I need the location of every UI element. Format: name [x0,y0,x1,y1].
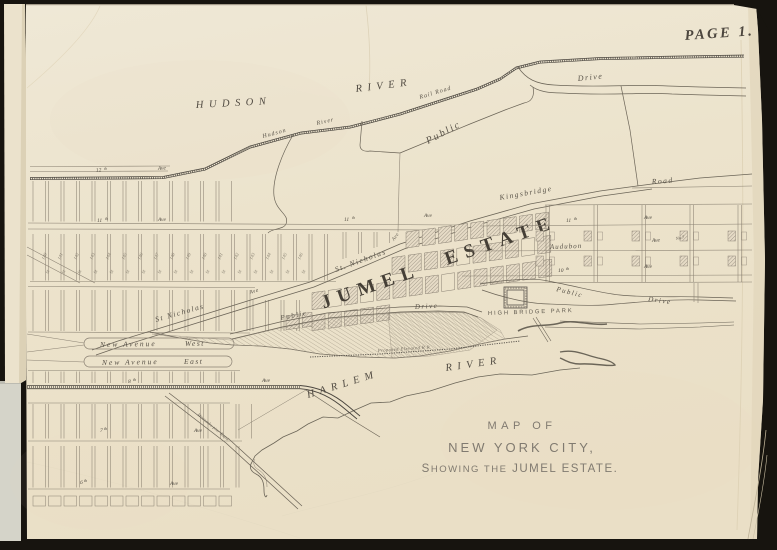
svg-text:11: 11 [97,218,102,224]
svg-text:Ave: Ave [651,238,661,244]
svg-text:th: th [352,215,355,220]
svg-text:Ave: Ave [157,165,167,172]
svg-text:MAP OF: MAP OF [488,420,557,432]
svg-text:th: th [105,216,108,221]
svg-text:Audubon: Audubon [549,242,583,251]
svg-text:Ave: Ave [157,217,166,223]
svg-text:Ave: Ave [643,215,652,221]
svg-text:10: 10 [558,268,564,274]
svg-text:11: 11 [566,218,571,224]
svg-text:SHOWING THE JUMEL ESTATE.: SHOWING THE JUMEL ESTATE. [422,463,619,475]
svg-text:Drive: Drive [414,302,439,311]
svg-text:th: th [84,478,87,483]
svg-text:NEW YORK CITY,: NEW YORK CITY, [448,440,596,455]
svg-text:6: 6 [80,480,83,486]
svg-text:7: 7 [100,428,103,434]
svg-text:East: East [183,357,203,366]
svg-text:th: th [133,377,136,382]
svg-text:th: th [574,216,577,221]
svg-text:8: 8 [128,379,131,385]
svg-text:New Avenue: New Avenue [99,339,157,349]
svg-text:11: 11 [344,217,349,223]
svg-text:Ave: Ave [169,481,178,487]
svg-text:th: th [566,266,569,271]
svg-text:West: West [185,339,205,348]
svg-text:Ave: Ave [423,213,432,219]
svg-text:th: th [104,426,107,431]
svg-text:Ave: Ave [261,378,270,384]
svg-text:Ave: Ave [193,428,202,434]
svg-text:New Avenue: New Avenue [101,357,159,367]
svg-text:Road: Road [651,175,674,186]
svg-text:Ave: Ave [643,264,652,270]
svg-text:12: 12 [96,168,102,174]
svg-text:th: th [104,166,107,171]
